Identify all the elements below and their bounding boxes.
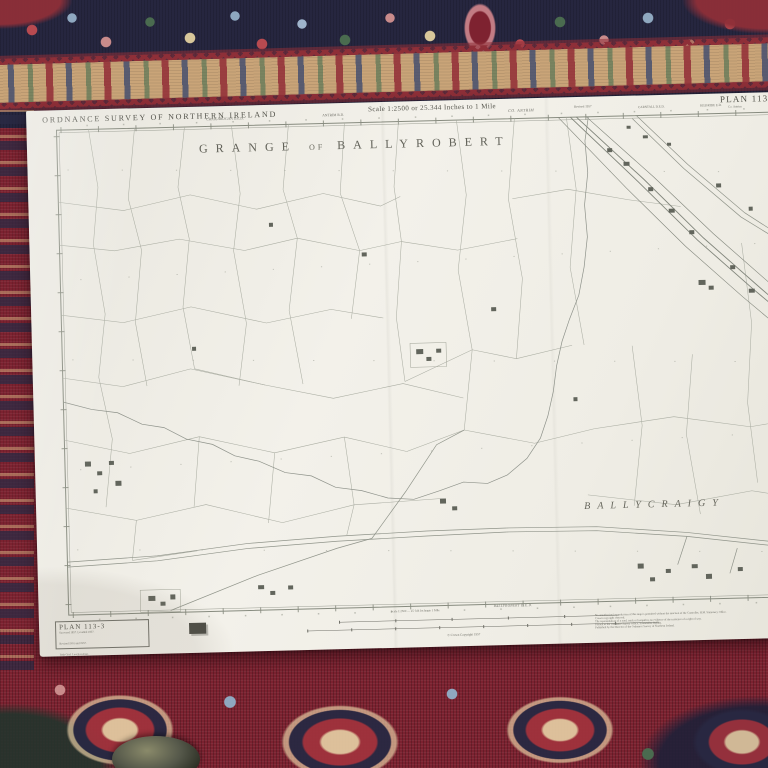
- legend-box: PLAN 113-3 Surveyed 1857. Levelled 1857.…: [55, 619, 150, 649]
- legend-line: Revised 1901 and 1957.: [59, 640, 151, 645]
- map-linework: [26, 91, 768, 657]
- rd-left-label: ANTRIM R.D.: [322, 113, 344, 118]
- ed-right-label: KILBRIDE E.D.: [700, 103, 722, 107]
- townland-word-ballyrobert: BALLYROBERT: [337, 134, 511, 153]
- index-diagram: [189, 623, 206, 634]
- roads: [56, 111, 768, 613]
- field-boundaries: [56, 111, 768, 562]
- map-sheet: ORDNANCE SURVEY OF NORTHERN IRELAND CRAI…: [26, 91, 768, 657]
- townland-word-of: OF: [309, 142, 325, 151]
- plan-sub-label: Co. Antrim: [728, 105, 742, 109]
- revised-label: Revised 1957: [574, 105, 592, 109]
- county-label: CO. ANTRIM: [508, 108, 534, 113]
- townland-word-grange: GRANGE: [199, 139, 297, 156]
- photo-canvas: ORDNANCE SURVEY OF NORTHERN IRELAND CRAI…: [0, 0, 768, 768]
- ded-right-label: CARNTALL D.E.D.: [638, 105, 665, 109]
- railway: [558, 111, 768, 354]
- stream: [56, 117, 597, 508]
- buildings: [77, 122, 768, 614]
- plan-number: PLAN 113-3: [720, 93, 768, 104]
